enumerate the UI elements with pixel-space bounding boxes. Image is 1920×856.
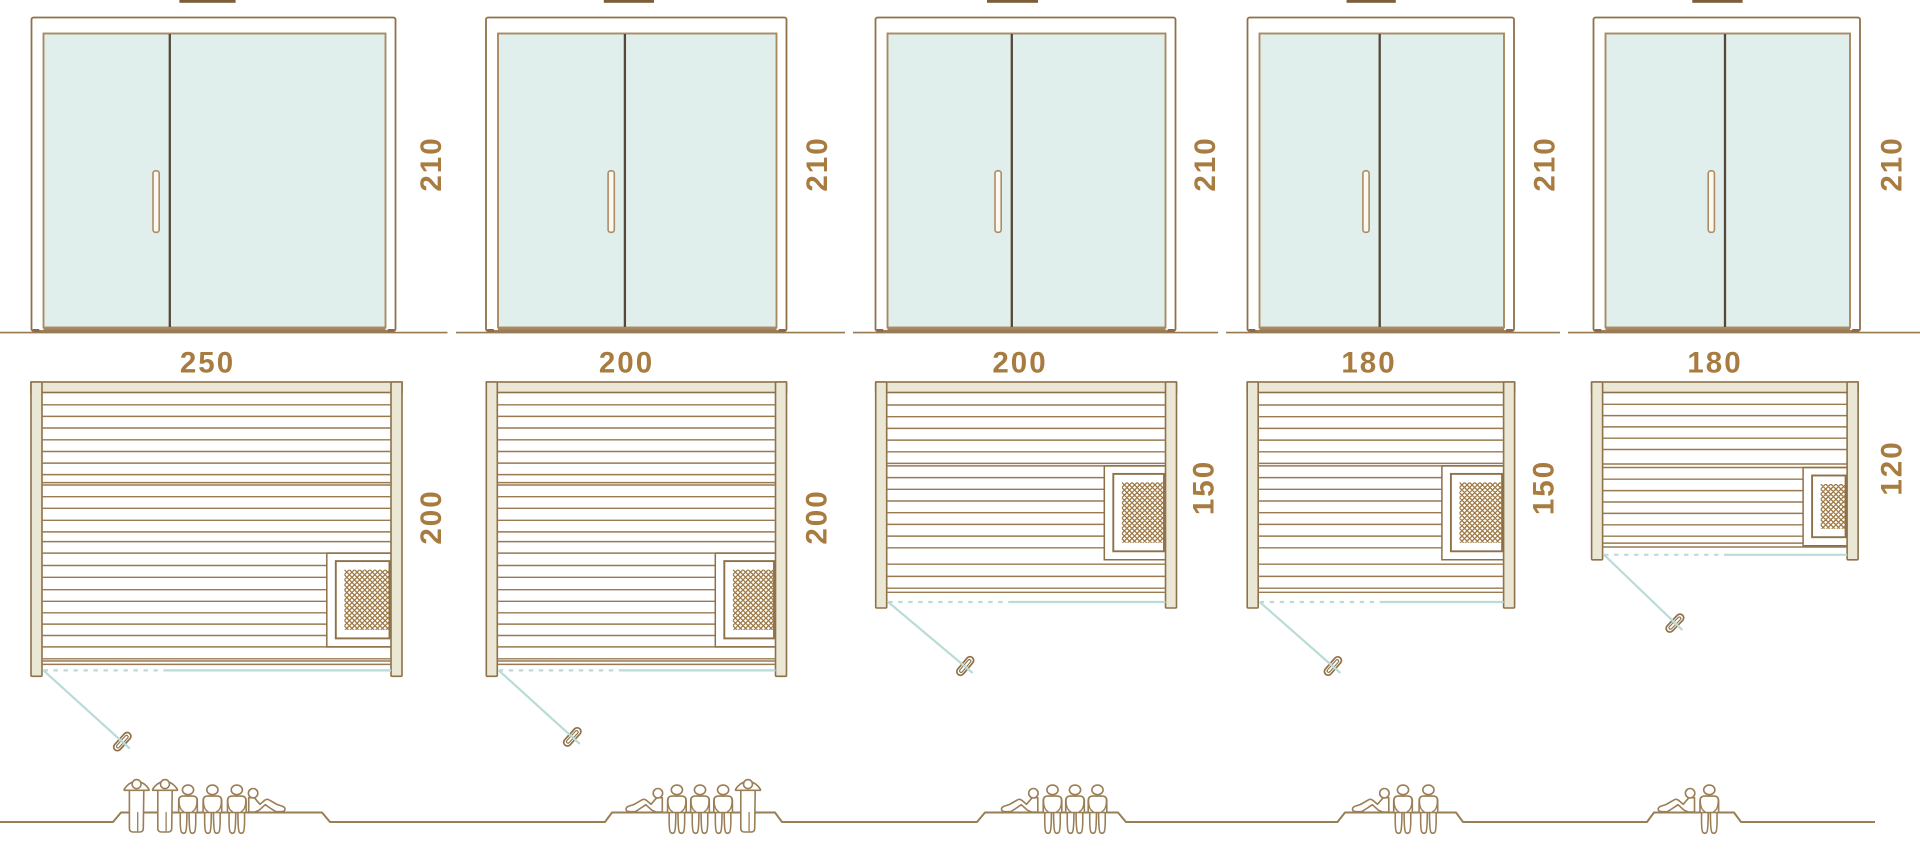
svg-text:250: 250 <box>180 347 235 380</box>
svg-text:200: 200 <box>801 489 834 544</box>
svg-text:180: 180 <box>1687 347 1742 380</box>
svg-text:200: 200 <box>599 347 654 380</box>
svg-text:210: 210 <box>1189 136 1222 191</box>
svg-text:210: 210 <box>1529 136 1562 191</box>
svg-text:150: 150 <box>1528 460 1561 515</box>
svg-text:210: 210 <box>801 136 834 191</box>
svg-text:210: 210 <box>1876 136 1909 191</box>
svg-text:150: 150 <box>1188 460 1221 515</box>
svg-text:200: 200 <box>415 489 448 544</box>
svg-text:200: 200 <box>992 347 1047 380</box>
svg-text:210: 210 <box>415 136 448 191</box>
svg-text:120: 120 <box>1876 440 1909 495</box>
svg-text:180: 180 <box>1341 347 1396 380</box>
